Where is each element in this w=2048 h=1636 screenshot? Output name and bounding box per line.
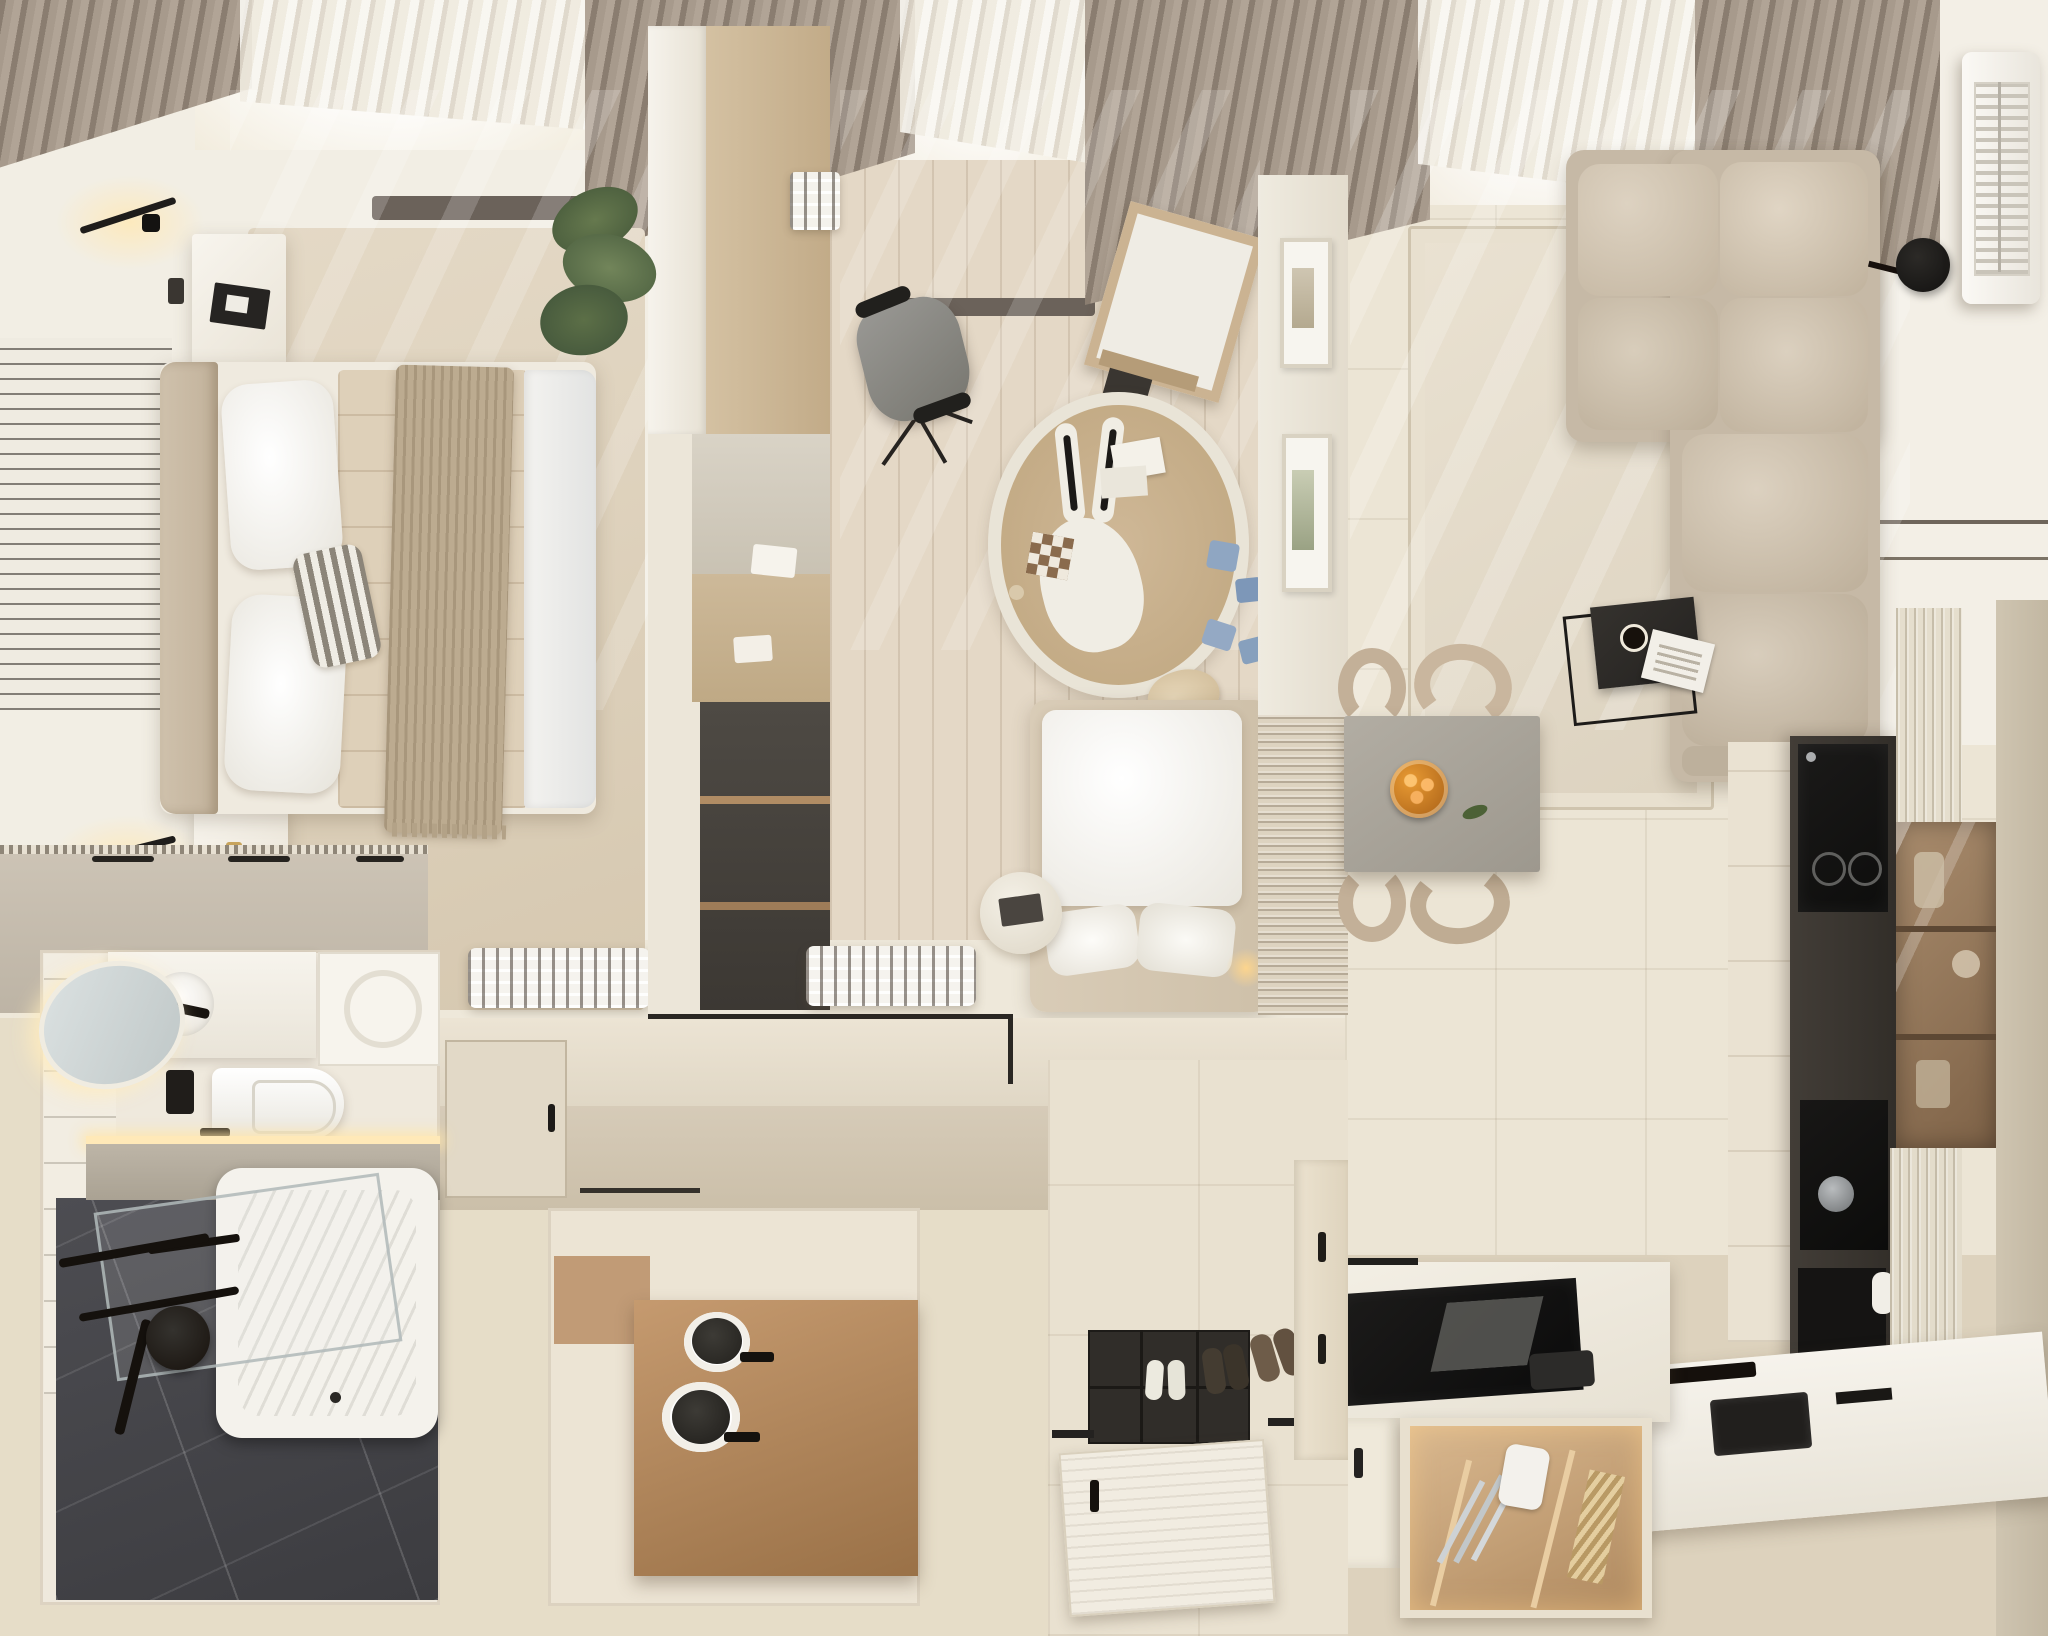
bed-headboard <box>160 362 218 814</box>
divider-shelf-edge-2 <box>700 902 830 910</box>
toy-ball <box>1009 585 1024 600</box>
dining-chair-bottom-1 <box>1338 864 1406 942</box>
basin-tab-1 <box>740 1352 774 1362</box>
kids-air-vent <box>806 946 976 1006</box>
sink-basin <box>1710 1392 1813 1456</box>
apartment-top-view <box>0 0 2048 1636</box>
desk-item-1 <box>751 544 798 578</box>
hall-skirting-accent <box>580 1188 700 1193</box>
kids-bed <box>1030 700 1270 1012</box>
frame-2-art <box>1292 470 1314 550</box>
fruit-texture <box>1398 768 1440 810</box>
living-ac-unit <box>1962 52 2040 304</box>
white-book-2 <box>1100 465 1148 498</box>
pot-on-hob <box>1529 1350 1595 1390</box>
throw-fringe <box>392 823 506 840</box>
oven-highlight <box>1806 752 1816 762</box>
front-door-handle <box>1090 1480 1099 1512</box>
wall-switch <box>168 278 184 304</box>
cabinet-handle-1 <box>1318 1232 1326 1262</box>
living-sconce-disc <box>1896 238 1950 292</box>
kids-ribbed-panel <box>1258 715 1348 1015</box>
slipper-1 <box>1145 1359 1165 1400</box>
entry-threshold-accent-1 <box>1052 1430 1094 1438</box>
coffee-side-table <box>1568 602 1708 722</box>
plant <box>540 180 660 380</box>
shower-head <box>146 1306 210 1370</box>
oven-knob-1 <box>1812 852 1846 886</box>
sofa-cushion-4 <box>1720 298 1868 432</box>
dishes-3 <box>1916 1060 1950 1108</box>
pillow-1 <box>220 378 345 571</box>
side-table-book <box>998 893 1043 927</box>
hall-trim-line-1 <box>648 1014 1008 1019</box>
slipper-2 <box>1167 1360 1185 1401</box>
sconce-glow-1 <box>55 175 205 270</box>
bathtub-drain <box>330 1392 341 1403</box>
checker-toy <box>1026 532 1075 581</box>
entry-shoe-cabinet <box>1294 1160 1348 1460</box>
kitchen-tile-wall <box>1728 742 1790 1342</box>
bunny-body <box>1026 507 1156 662</box>
kids-mini-vent <box>790 172 840 230</box>
wall-sconce-1-base <box>142 214 160 232</box>
bedroom-air-vent <box>468 948 650 1008</box>
basin-1-bowl <box>692 1318 742 1364</box>
cabinet-handle-2 <box>1318 1334 1326 1364</box>
dishes-2 <box>1952 950 1980 978</box>
bedroom-slat-wall-panel <box>0 338 172 710</box>
ac-louvers <box>1974 82 2030 276</box>
basin-2-bowl <box>672 1390 730 1444</box>
sofa-cushion-2 <box>1720 162 1868 296</box>
front-door-open <box>1059 1439 1276 1617</box>
bronze-glass-cabinet <box>1896 822 1996 1148</box>
toy-block-1 <box>1206 540 1240 573</box>
sofa-cushion-5 <box>1682 434 1868 592</box>
dresser-handle-2 <box>228 856 290 862</box>
glass-shelf-1 <box>1896 926 1996 932</box>
office-chair <box>846 272 976 482</box>
dresser-handle-1 <box>92 856 154 862</box>
dresser-serrated-edge <box>0 845 428 854</box>
kids-pillow-2 <box>1135 901 1238 979</box>
right-wall-line-2 <box>1875 557 2048 560</box>
dresser-handle-3 <box>356 856 404 862</box>
fluted-panel-top <box>1896 608 1962 822</box>
nightstand-card <box>225 295 249 314</box>
dishes-1 <box>1914 852 1944 908</box>
coffee-cup <box>1620 624 1648 652</box>
coffee-machine <box>1800 1100 1888 1250</box>
built-in-oven <box>1798 744 1888 912</box>
island-handle <box>1354 1448 1363 1478</box>
sofa-cushion-1 <box>1578 164 1718 296</box>
toilet-seat-line <box>252 1080 336 1134</box>
hall-trim-line-2 <box>1008 1014 1013 1084</box>
washer-door <box>344 970 422 1048</box>
bed-white-duvet-fold <box>524 370 596 808</box>
coffee-machine-dial <box>1818 1176 1854 1212</box>
ac-louver-split <box>1998 82 2001 272</box>
closet-door-handle <box>548 1104 555 1132</box>
cutlery-drawer-open <box>1400 1418 1652 1618</box>
divider-wardrobe-wood <box>706 26 830 434</box>
toilet-flush-plate <box>166 1070 194 1114</box>
sofa-cushion-3 <box>1578 298 1718 430</box>
right-wall-line-1 <box>1875 520 2048 524</box>
sofa-cushion-6 <box>1682 594 1868 746</box>
basin-tab-2 <box>724 1432 760 1442</box>
kids-duvet <box>1042 710 1242 906</box>
oven-knob-2 <box>1848 852 1882 886</box>
bed-knit-throw <box>384 365 514 836</box>
desk-item-2 <box>733 635 773 664</box>
divider-shelf-edge-1 <box>700 796 830 804</box>
glass-shelf-2 <box>1896 1034 1996 1040</box>
frame-1-art <box>1292 268 1314 328</box>
